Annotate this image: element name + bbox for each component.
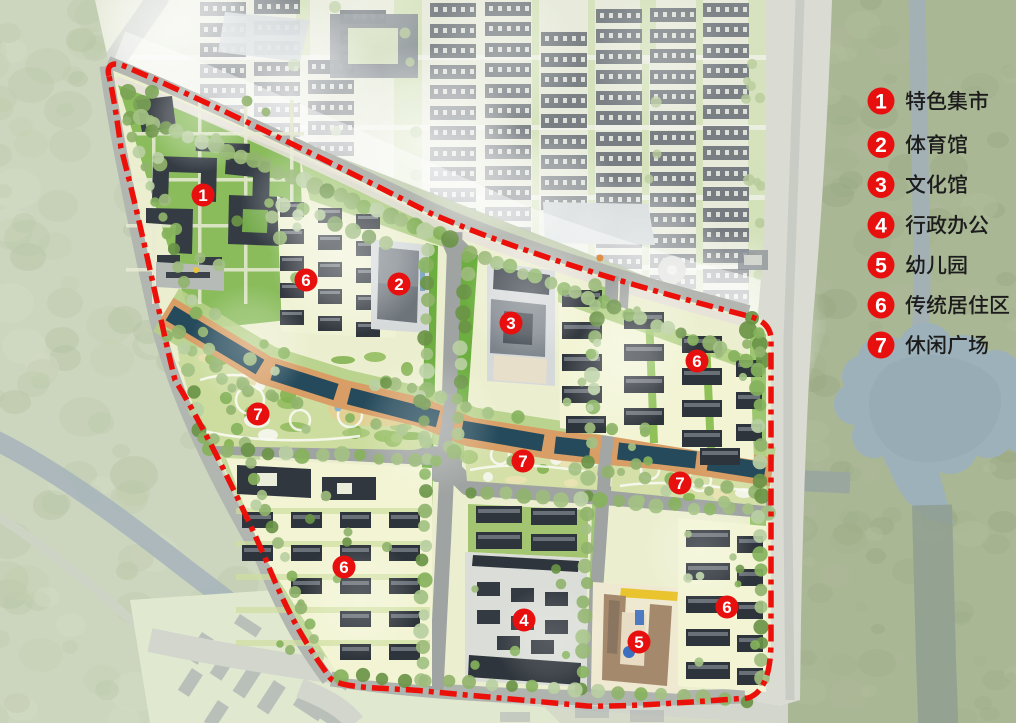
svg-text:1: 1 — [198, 186, 207, 205]
svg-text:6: 6 — [722, 598, 731, 617]
svg-text:7: 7 — [875, 335, 887, 358]
svg-text:6: 6 — [339, 558, 348, 577]
svg-text:5: 5 — [634, 633, 643, 652]
svg-text:6: 6 — [875, 295, 887, 318]
svg-text:3: 3 — [506, 314, 515, 333]
svg-text:1: 1 — [875, 91, 887, 114]
svg-text:7: 7 — [253, 405, 262, 424]
svg-text:6: 6 — [301, 271, 310, 290]
svg-text:2: 2 — [875, 134, 887, 157]
svg-text:7: 7 — [675, 474, 684, 493]
svg-text:5: 5 — [875, 255, 887, 278]
svg-text:6: 6 — [692, 352, 701, 371]
svg-text:4: 4 — [875, 215, 887, 238]
svg-text:3: 3 — [875, 174, 887, 197]
svg-text:7: 7 — [518, 452, 527, 471]
svg-text:4: 4 — [519, 611, 529, 630]
svg-text:2: 2 — [394, 275, 403, 294]
